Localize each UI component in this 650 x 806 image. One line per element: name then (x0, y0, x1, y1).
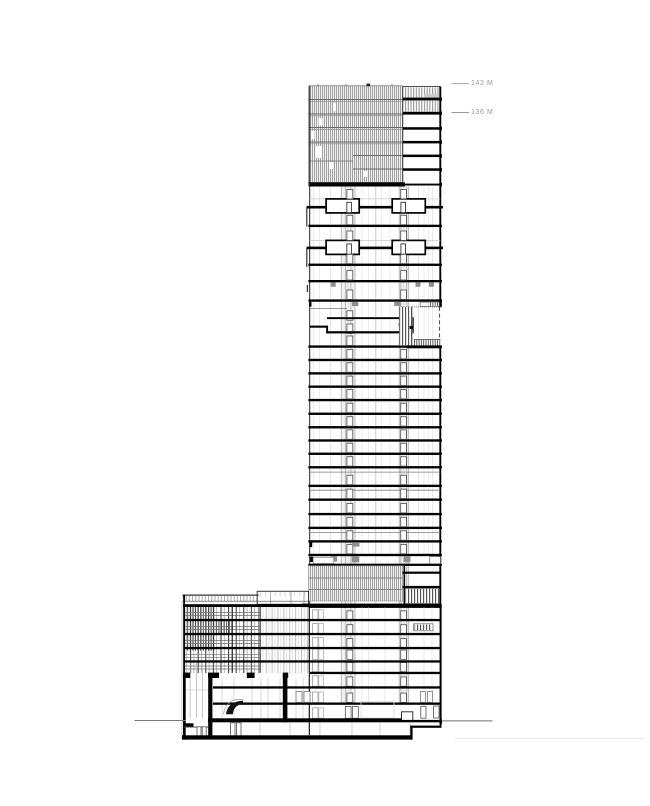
svg-text:142 M: 142 M (471, 80, 493, 87)
svg-text:136 M: 136 M (471, 109, 493, 116)
